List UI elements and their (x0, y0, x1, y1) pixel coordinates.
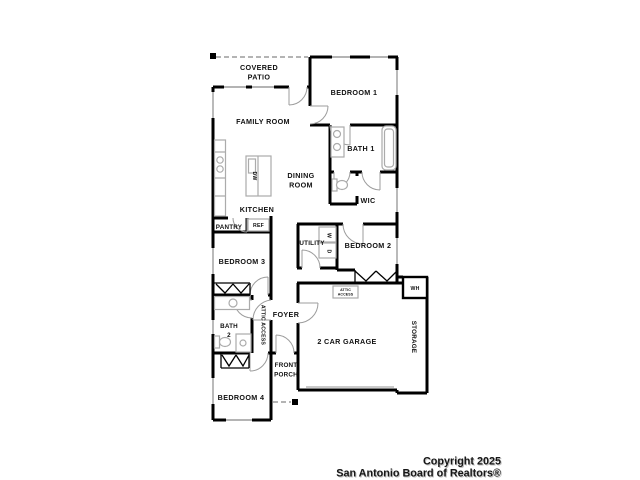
copyright-line2: San Antonio Board of Realtors® (336, 468, 501, 480)
bath1-toilet-bowl (337, 181, 348, 190)
label-attic-access-hall: ATTIC ACCESS (260, 305, 266, 345)
room-label-covered-patio-line2: PATIO (248, 73, 271, 82)
room-label-bedroom-3: BEDROOM 3 (219, 257, 266, 266)
room-label-front-porch-line2: PORCH (274, 372, 298, 379)
label-attic-access-garage-line1: ATTIC (340, 288, 351, 292)
copyright-footer: Copyright 2025 Copyright 2025 San Antoni… (336, 456, 502, 480)
room-label-wic: WIC (360, 196, 375, 205)
room-label-bath-2-line1: BATH (220, 323, 238, 330)
label-washer: W (326, 233, 332, 238)
room-label-kitchen: KITCHEN (240, 205, 274, 214)
room-label-bath-1: BATH 1 (347, 144, 375, 153)
room-label-garage: 2 CAR GARAGE (317, 337, 376, 346)
room-label-storage: STORAGE (410, 321, 417, 353)
room-label-bedroom-4: BEDROOM 4 (218, 393, 265, 402)
copyright-line1: Copyright 2025 (423, 456, 501, 468)
porch-corner-marker (292, 399, 298, 405)
floor-plan: COVERED PATIO BEDROOM 1 FAMILY ROOM BATH… (0, 0, 640, 480)
label-water-heater: WH (410, 286, 419, 292)
room-label-foyer: FOYER (273, 310, 300, 319)
label-dishwasher: DW (251, 171, 257, 180)
room-label-family-room: FAMILY ROOM (236, 117, 290, 126)
windows (213, 57, 397, 420)
room-label-covered-patio-line1: COVERED (240, 63, 278, 72)
bath1-vanity (331, 127, 344, 157)
room-label-dining-line1: DINING (287, 171, 314, 180)
label-dryer: D (326, 250, 332, 254)
patio-corner-marker (210, 53, 216, 59)
label-attic-access-garage-line2: ACCESS (338, 293, 354, 297)
floor-plan-page: COVERED PATIO BEDROOM 1 FAMILY ROOM BATH… (0, 0, 640, 480)
room-label-pantry: PANTRY (216, 224, 243, 231)
room-label-front-porch-line1: FRONT (275, 362, 298, 369)
bath2-shower (236, 334, 251, 352)
room-label-bedroom-1: BEDROOM 1 (331, 88, 378, 97)
room-label-dining-line2: ROOM (289, 181, 313, 190)
room-label-bedroom-2: BEDROOM 2 (345, 241, 392, 250)
label-ref: REF (253, 223, 264, 229)
room-label-bath-2-line2: 2 (227, 332, 231, 339)
room-label-utility: UTILITY (299, 240, 325, 247)
bath2-vanity (215, 297, 250, 310)
bath2-toilet-tank (215, 336, 220, 348)
